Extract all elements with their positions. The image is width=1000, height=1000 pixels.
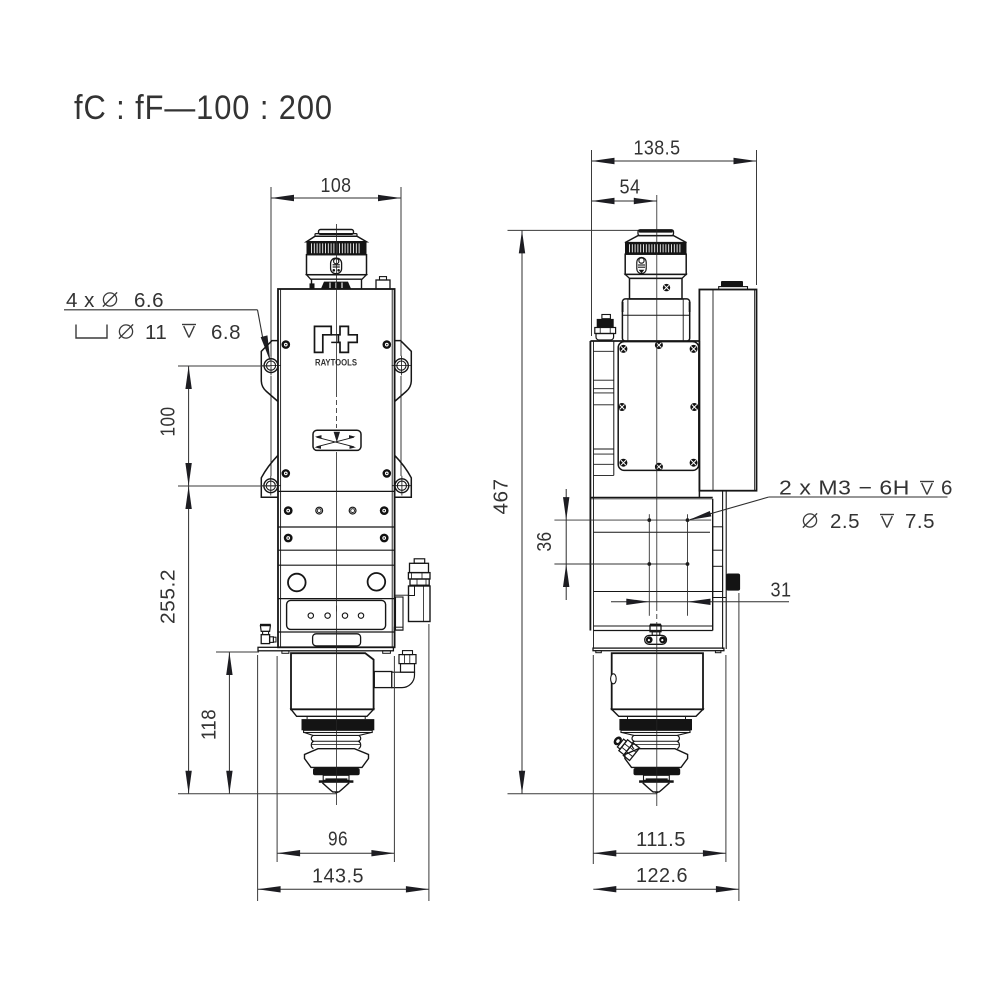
svg-text:4 x: 4 x — [66, 289, 95, 312]
svg-text:6: 6 — [941, 477, 953, 500]
svg-text:96: 96 — [328, 828, 348, 851]
svg-text:111.5: 111.5 — [636, 828, 686, 851]
svg-text:143.5: 143.5 — [312, 865, 364, 888]
svg-text:31: 31 — [771, 579, 792, 602]
svg-text:138.5: 138.5 — [634, 137, 681, 160]
svg-text:122.6: 122.6 — [636, 864, 688, 887]
svg-text:6.8: 6.8 — [211, 321, 241, 344]
svg-text:2 x M3 − 6H: 2 x M3 − 6H — [779, 477, 910, 500]
svg-text:54: 54 — [620, 176, 641, 199]
svg-text:fC : fF—100 : 200: fC : fF—100 : 200 — [74, 89, 333, 127]
svg-text:RAYTOOLS: RAYTOOLS — [315, 358, 357, 368]
svg-text:108: 108 — [321, 174, 352, 197]
svg-text:255.2: 255.2 — [157, 569, 180, 624]
svg-text:467: 467 — [490, 479, 513, 515]
svg-text:2.5: 2.5 — [830, 510, 860, 533]
svg-text:11: 11 — [145, 321, 167, 344]
svg-text:100: 100 — [157, 407, 180, 437]
svg-text:118: 118 — [198, 709, 221, 740]
svg-text:6.6: 6.6 — [134, 289, 164, 312]
svg-text:7.5: 7.5 — [905, 510, 935, 533]
svg-text:36: 36 — [533, 532, 556, 552]
